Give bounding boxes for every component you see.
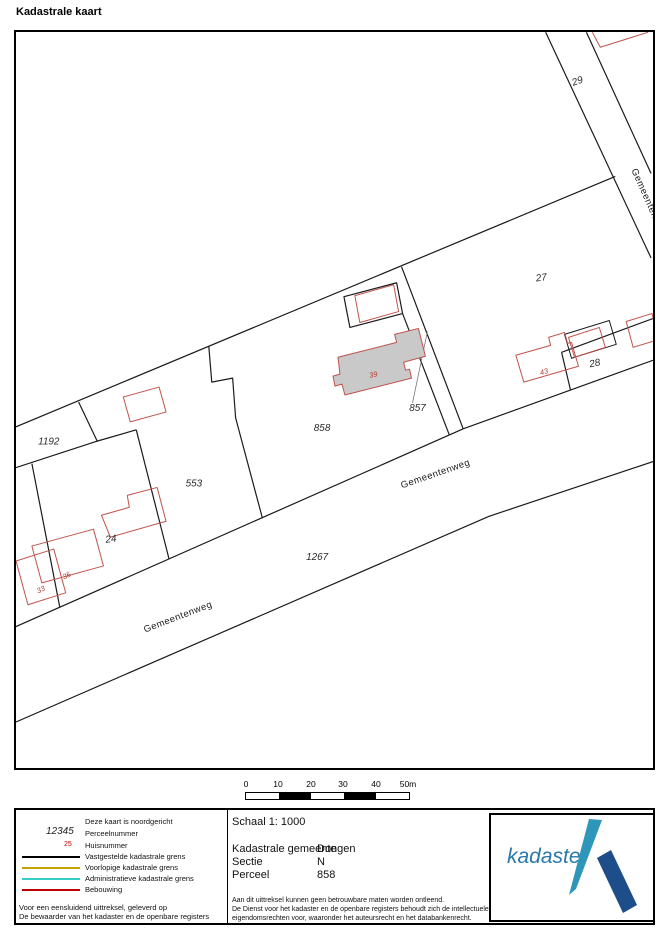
map-canvas: 29 27 28 857 858 1192 553 24 1267 39 43 …	[16, 32, 653, 768]
parcel-24: 24	[104, 533, 118, 546]
road-label-gemeentenweg-east: Gemeentenweg	[629, 167, 653, 238]
house-33: 33	[35, 583, 47, 595]
scale-seg-3	[311, 793, 344, 799]
legend-footer-2: De bewaarder van het kadaster en de open…	[19, 912, 209, 921]
disclaimer-line-2: De Dienst voor het kadaster en de openba…	[232, 906, 489, 913]
parcel-27: 27	[534, 272, 548, 285]
kadaster-logo-text: kadaster	[507, 845, 589, 868]
building-cut-top-right	[592, 32, 648, 47]
building-24-house	[101, 487, 166, 537]
buildings	[16, 32, 653, 604]
scale-tick-50m: 50m	[400, 779, 417, 789]
scale-seg-4	[344, 793, 376, 799]
bottom-panel: Deze kaart is noordgericht 12345 Perceel…	[14, 808, 655, 925]
parcel-553: 553	[186, 478, 203, 489]
parcel-28: 28	[587, 357, 602, 370]
scale-tick-30: 30	[338, 779, 347, 789]
building-39	[333, 328, 425, 395]
house-43: 43	[539, 366, 550, 377]
parcel-numbers: 29 27 28 857 858 1192 553 24 1267	[38, 74, 602, 563]
kadaster-logo: kadaster	[491, 815, 653, 920]
legend-parcel-sample: 12345	[46, 826, 74, 837]
page-title: Kadastrale kaart	[16, 6, 102, 18]
legend-house-label: Huisnummer	[85, 841, 128, 850]
panel-divider	[227, 810, 228, 923]
legend-line-vastgesteld: Vastgestelde kadastrale grens	[85, 852, 185, 861]
parcel-field-value: 858	[317, 869, 335, 881]
road-label-gemeentenweg-center: Gemeentenweg	[399, 457, 471, 491]
scale-seg-1	[246, 793, 279, 799]
kadaster-logo-bar-icon	[597, 850, 637, 913]
scale-bar: 0 10 20 30 40 50m	[245, 779, 410, 803]
scale-tick-0: 0	[244, 779, 249, 789]
kadastrale-kaart-page: { "page_title": "Kadastrale kaart", "map…	[0, 0, 669, 944]
kadaster-logo-box: kadaster	[489, 813, 655, 922]
building-28b	[626, 314, 653, 348]
municipality-value: Dongen	[317, 843, 356, 855]
legend-line-voorlopig-swatch	[22, 867, 80, 869]
legend-north-note: Deze kaart is noordgericht	[85, 817, 173, 826]
legend-line-bebouwing-swatch	[22, 889, 80, 891]
building-553-area	[123, 387, 166, 422]
scale-seg-5	[376, 793, 409, 799]
road-labels: Gemeentenweg Gemeentenweg Gemeentenweg	[142, 167, 653, 636]
house-numbers: 39 43 35 33	[35, 366, 550, 595]
parcel-1267: 1267	[306, 552, 329, 563]
legend-parcel-label: Perceelnummer	[85, 829, 138, 838]
parcel-1192: 1192	[38, 437, 60, 448]
legend-footer-1: Voor een eensluidend uittreksel, gelever…	[19, 903, 167, 912]
house-39: 39	[368, 370, 378, 380]
legend-line-bebouwing: Bebouwing	[85, 885, 122, 894]
scale-bar-segments	[245, 792, 410, 800]
cadastral-map: 29 27 28 857 858 1192 553 24 1267 39 43 …	[14, 30, 655, 770]
legend-line-administratief: Administratieve kadastrale grens	[85, 874, 194, 883]
section-label: Sectie	[232, 856, 263, 868]
parcel-857: 857	[409, 403, 426, 414]
disclaimer-line-3: eigendomsrechten voor, waaronder het aut…	[232, 915, 472, 922]
legend-line-voorlopig: Voorlopige kadastrale grens	[85, 863, 178, 872]
scale-bar-labels: 0 10 20 30 40 50m	[245, 779, 410, 789]
road-label-gemeentenweg-sw: Gemeentenweg	[142, 599, 214, 635]
legend-house-sample: 25	[64, 841, 72, 848]
disclaimer-line-1: Aan dit uittreksel kunnen geen betrouwba…	[232, 897, 444, 904]
legend-line-vastgesteld-swatch	[22, 856, 80, 858]
scale-seg-2	[279, 793, 311, 799]
parcel-29: 29	[570, 74, 586, 89]
scale-tick-20: 20	[306, 779, 315, 789]
legend-line-administratief-swatch	[22, 878, 80, 880]
scale-tick-40: 40	[371, 779, 380, 789]
scale-text: Schaal 1: 1000	[232, 816, 305, 828]
scale-tick-10: 10	[273, 779, 282, 789]
parcel-858: 858	[314, 423, 331, 434]
house-35: 35	[61, 569, 73, 581]
parcel-field-label: Perceel	[232, 869, 269, 881]
section-value: N	[317, 856, 325, 868]
